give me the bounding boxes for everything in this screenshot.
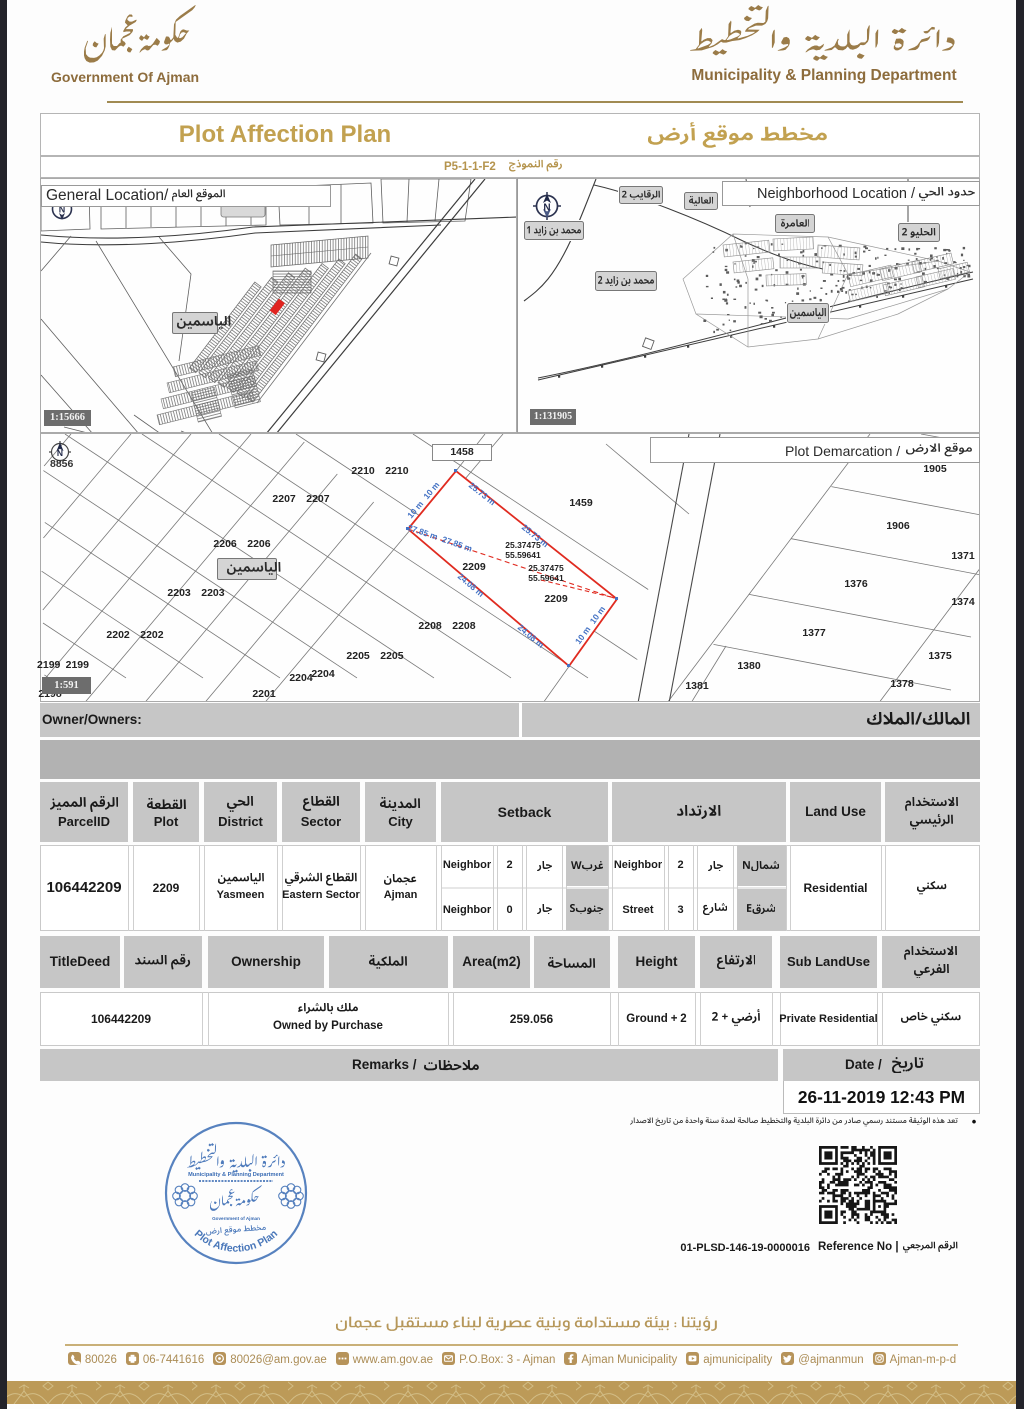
svg-text:N: N <box>543 203 550 214</box>
svg-text:Municipality & Planning Depart: Municipality & Planning Department <box>188 1172 284 1178</box>
svg-text:Government of Ajman: Government of Ajman <box>212 1216 260 1221</box>
svg-text:N: N <box>57 448 63 458</box>
